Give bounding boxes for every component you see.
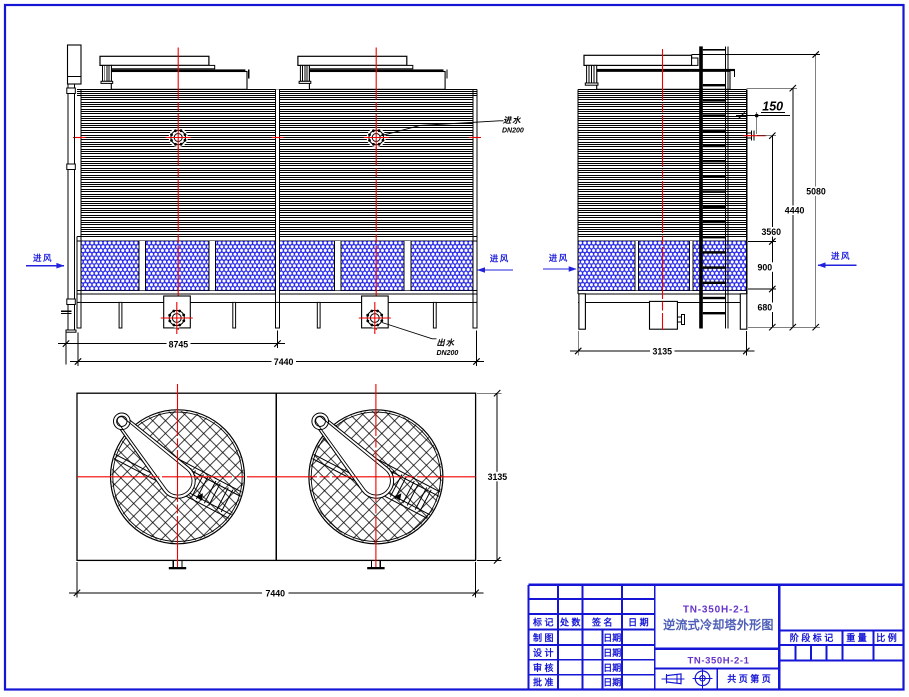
svg-text:4440: 4440 xyxy=(785,206,805,216)
svg-text:日期: 日期 xyxy=(603,632,621,643)
svg-text:7440: 7440 xyxy=(274,357,294,367)
svg-text:680: 680 xyxy=(757,303,772,313)
svg-text:5080: 5080 xyxy=(806,187,826,197)
svg-text:进风: 进风 xyxy=(549,253,569,263)
svg-text:处 数: 处 数 xyxy=(559,617,582,628)
svg-text:进风: 进风 xyxy=(490,254,510,264)
svg-text:共 页 第 页: 共 页 第 页 xyxy=(727,673,771,684)
svg-text:3135: 3135 xyxy=(653,347,673,357)
svg-text:TN-350H-2-1: TN-350H-2-1 xyxy=(683,605,750,616)
svg-text:设 计: 设 计 xyxy=(533,647,554,658)
svg-text:审 核: 审 核 xyxy=(533,662,554,673)
svg-text:DN200: DN200 xyxy=(437,350,459,357)
svg-text:3135: 3135 xyxy=(488,472,508,482)
svg-text:DN200: DN200 xyxy=(502,128,524,135)
svg-text:阶 段 标 记: 阶 段 标 记 xyxy=(790,632,834,643)
svg-text:进风: 进风 xyxy=(831,251,851,261)
svg-text:比 例: 比 例 xyxy=(876,632,897,643)
svg-text:日期: 日期 xyxy=(603,676,621,687)
svg-text:进风: 进风 xyxy=(33,253,53,263)
svg-text:日 期: 日 期 xyxy=(628,617,649,628)
svg-text:日期: 日期 xyxy=(603,662,621,673)
svg-text:进水: 进水 xyxy=(503,115,521,125)
svg-text:重 量: 重 量 xyxy=(846,632,867,643)
svg-text:标 记: 标 记 xyxy=(532,617,554,628)
svg-text:制 图: 制 图 xyxy=(533,632,554,643)
svg-text:3560: 3560 xyxy=(762,227,782,237)
svg-text:日期: 日期 xyxy=(603,647,621,658)
svg-text:TN-350H-2-1: TN-350H-2-1 xyxy=(687,656,749,667)
svg-text:逆流式冷却塔外形图: 逆流式冷却塔外形图 xyxy=(663,617,774,632)
svg-text:签 名: 签 名 xyxy=(591,617,613,628)
svg-text:出水: 出水 xyxy=(437,338,455,348)
svg-text:900: 900 xyxy=(757,262,772,272)
svg-text:7440: 7440 xyxy=(266,588,286,598)
svg-text:8745: 8745 xyxy=(169,339,189,349)
svg-text:150: 150 xyxy=(762,99,783,113)
svg-text:批 准: 批 准 xyxy=(533,676,554,687)
